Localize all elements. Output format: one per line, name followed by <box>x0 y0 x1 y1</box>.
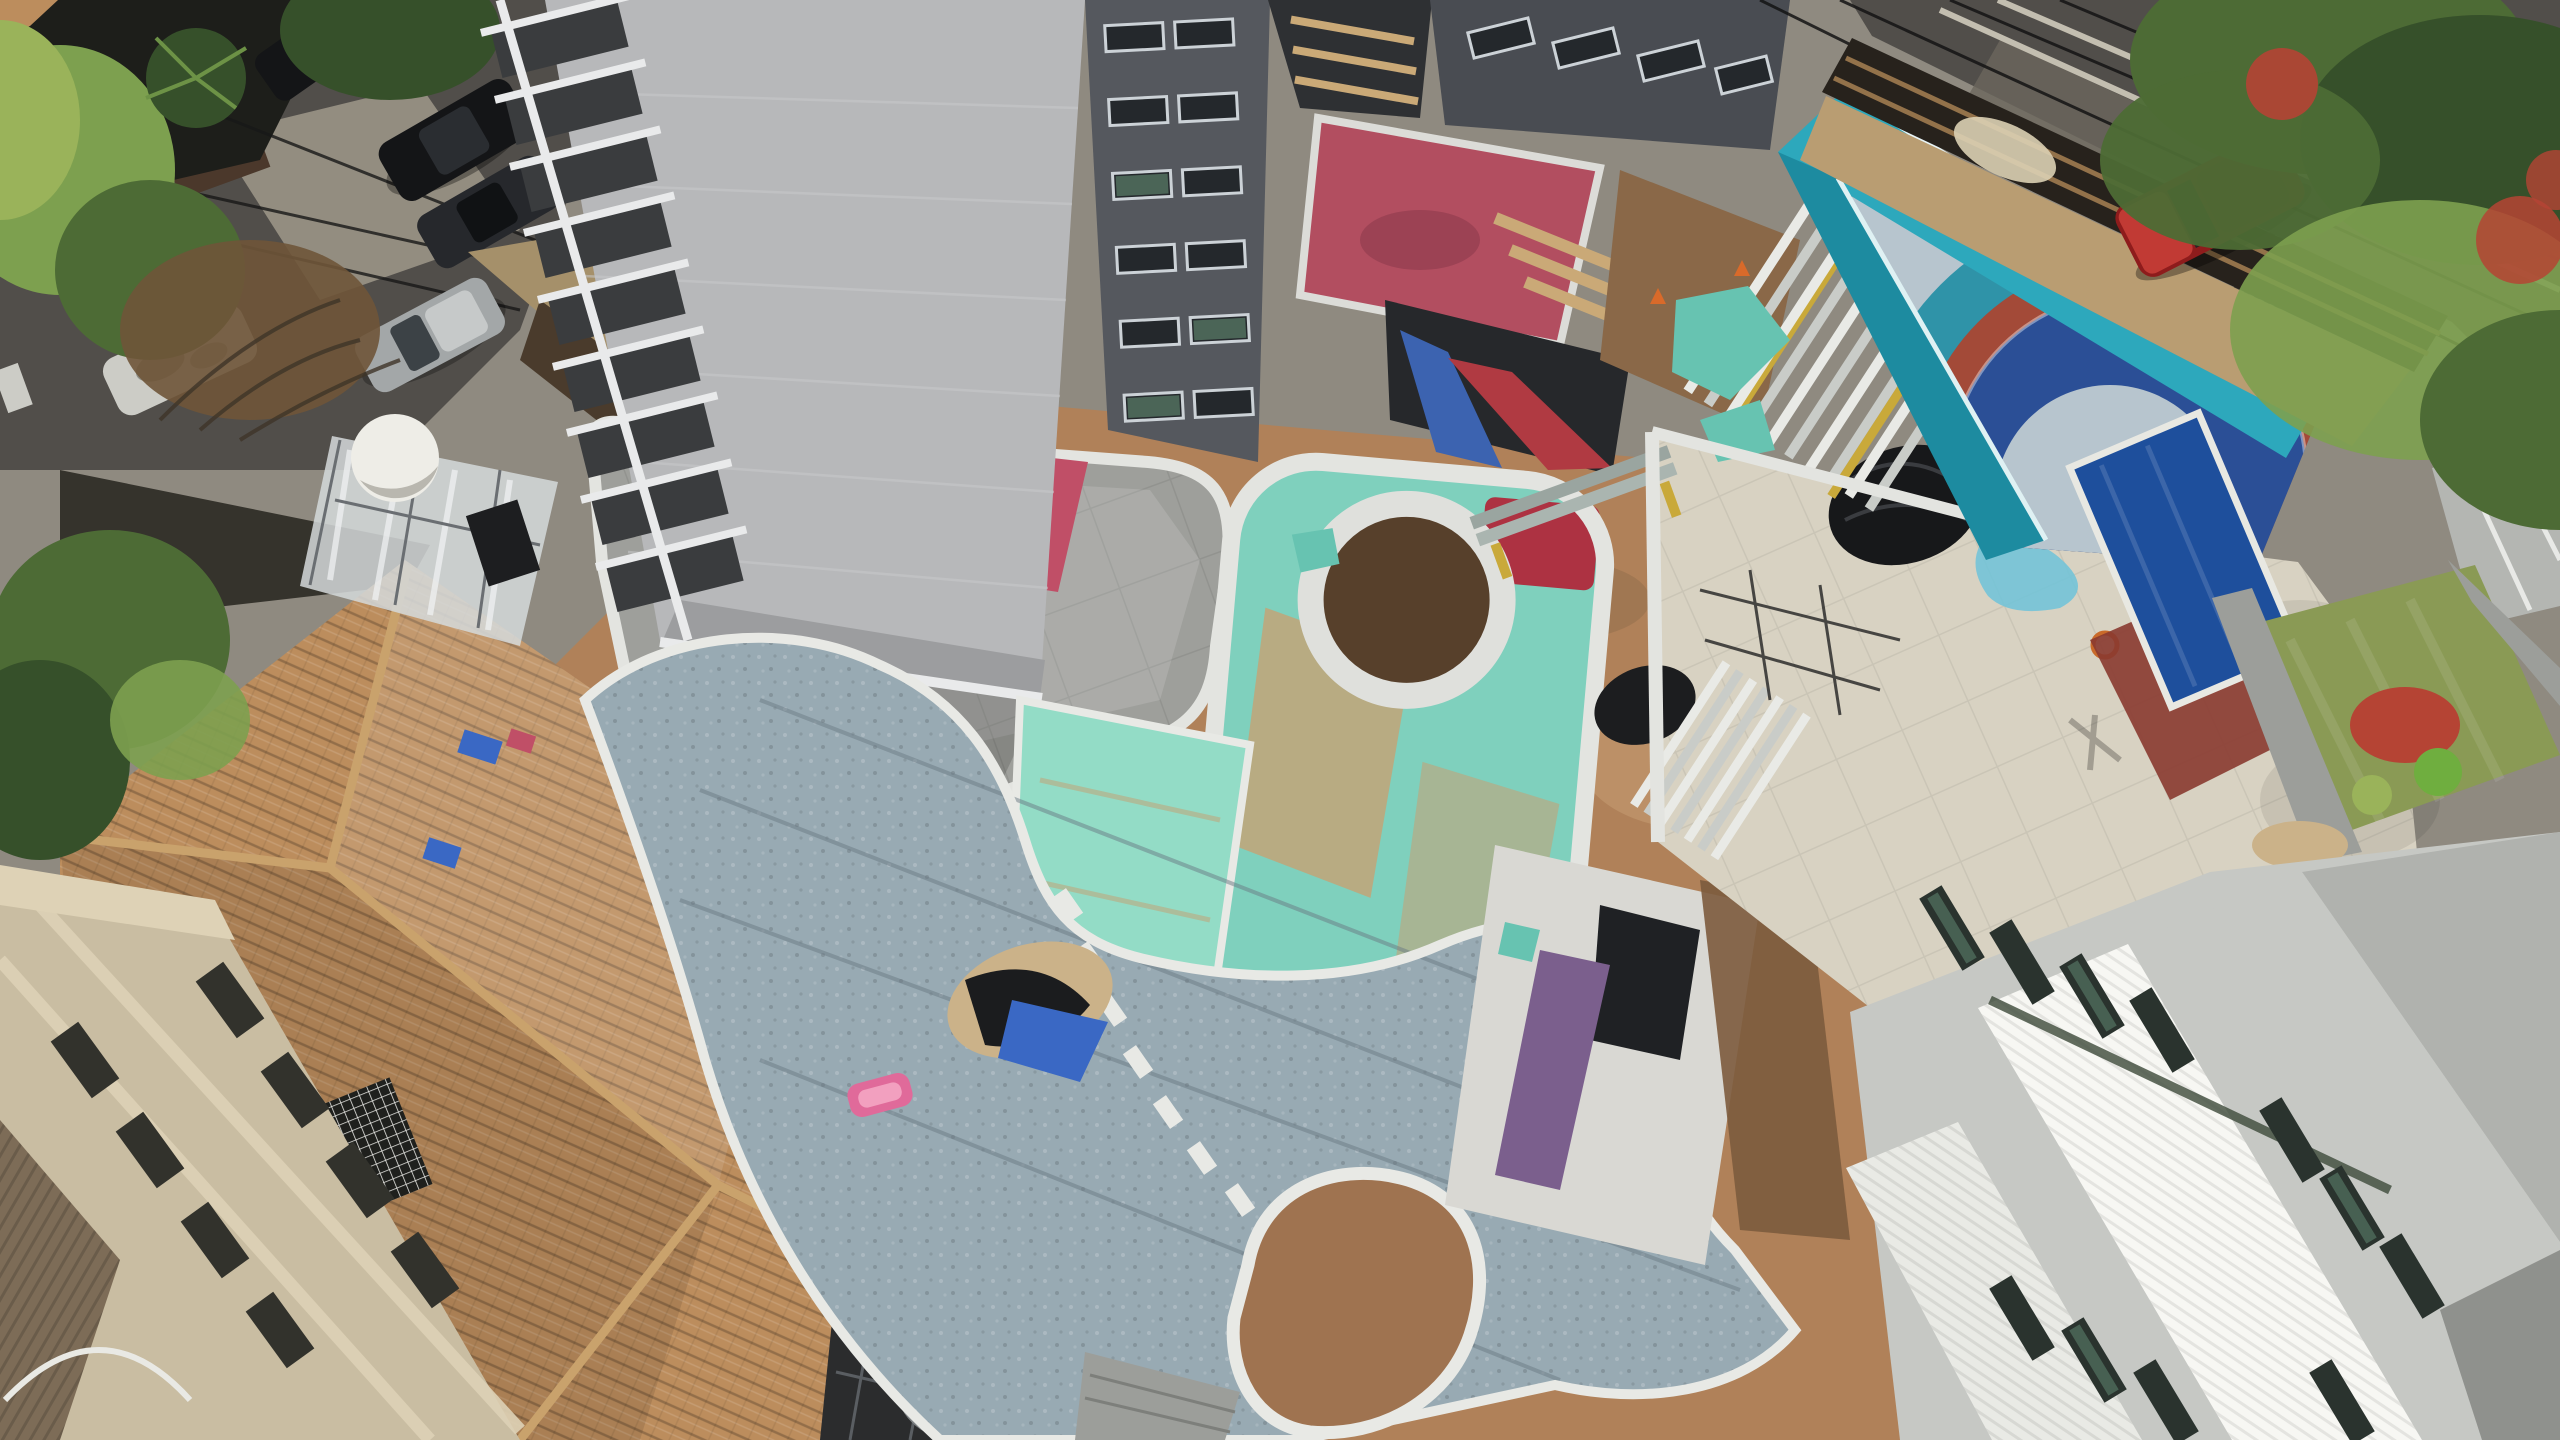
shrub <box>2352 775 2392 815</box>
red-flowers <box>2246 48 2318 120</box>
red-flowers <box>2476 196 2560 284</box>
dark-opening <box>1590 905 1700 1060</box>
floor-stain <box>1360 210 1480 270</box>
shrub <box>2414 748 2462 796</box>
terrace-wall <box>1652 432 1658 842</box>
right-gardens <box>2070 0 2560 869</box>
scene-canvas <box>0 0 2560 1440</box>
aerial-photo <box>0 0 2560 1440</box>
